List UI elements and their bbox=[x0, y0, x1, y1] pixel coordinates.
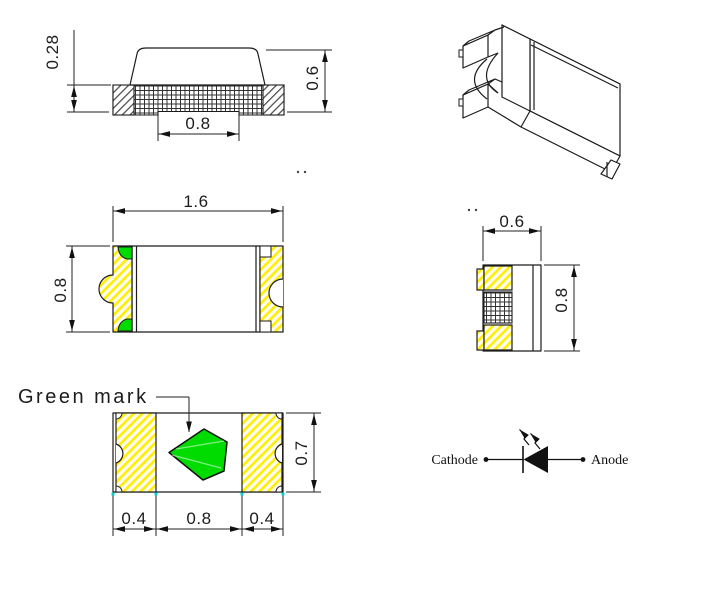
bottom-view: Green mark 0.4 0.8 0.4 bbox=[18, 386, 321, 536]
side-view-left-electrode bbox=[113, 85, 134, 115]
dim-text-08-top: 0.8 bbox=[51, 277, 70, 302]
led-package-drawing: 0.28 0.6 0.8 bbox=[0, 0, 707, 594]
side-view: 0.28 0.6 0.8 bbox=[43, 30, 332, 173]
side-view-base-plate bbox=[113, 85, 284, 115]
cathode-node bbox=[484, 457, 489, 462]
dim-text-07: 0.7 bbox=[292, 440, 311, 465]
dim-base-thickness: 0.28 bbox=[43, 30, 111, 112]
stray-dots-left bbox=[297, 171, 306, 173]
dim-text-16: 1.6 bbox=[183, 192, 208, 211]
dim-pads: 0.4 0.8 0.4 bbox=[112, 493, 285, 537]
end-view-electrode-top bbox=[484, 266, 512, 290]
side-view-resin-body bbox=[130, 48, 265, 85]
dim-text-028: 0.28 bbox=[43, 34, 62, 69]
end-view-wrap-bottom bbox=[477, 331, 484, 350]
iso-end-face bbox=[502, 25, 530, 111]
dim-bottom-notch: 0.8 bbox=[158, 114, 239, 141]
dim-text-08-bottom: 0.8 bbox=[186, 509, 211, 528]
dim-length: 1.6 bbox=[113, 192, 283, 242]
dim-text-04-right: 0.4 bbox=[249, 509, 274, 528]
end-view-wrap-top bbox=[477, 269, 484, 290]
top-view-right-corner-cut-bottom bbox=[260, 321, 271, 332]
drawing-canvas: 0.28 0.6 0.8 bbox=[0, 0, 707, 594]
dim-text-06-end: 0.6 bbox=[499, 212, 524, 231]
diode-triangle-icon bbox=[524, 446, 549, 473]
top-view: 1.6 0.8 bbox=[51, 192, 283, 332]
end-view-electrode-bottom bbox=[484, 325, 512, 350]
cathode-label: Cathode bbox=[431, 453, 478, 468]
defpoint-ticks bbox=[112, 493, 285, 496]
end-view: 0.6 0.8 bbox=[468, 209, 580, 351]
stray-dots-right bbox=[468, 209, 477, 211]
anode-node bbox=[581, 457, 586, 462]
dim-text-04-left: 0.4 bbox=[121, 509, 146, 528]
top-view-body bbox=[132, 246, 260, 332]
green-mark-label: Green mark bbox=[18, 386, 149, 408]
dim-end-height: 0.8 bbox=[544, 265, 580, 351]
dim-end-width: 0.6 bbox=[483, 212, 541, 261]
end-view-electrode-middle bbox=[484, 292, 512, 323]
anode-label: Anode bbox=[591, 453, 628, 468]
dim-text-08-end: 0.8 bbox=[552, 287, 571, 312]
side-view-right-electrode bbox=[263, 85, 284, 115]
polarity-symbol: Cathode Anode bbox=[431, 430, 628, 474]
top-view-right-corner-cut-top bbox=[260, 246, 271, 257]
dim-text-08-side: 0.8 bbox=[185, 114, 210, 133]
isometric-view bbox=[459, 25, 620, 179]
dim-text-06-side: 0.6 bbox=[303, 65, 322, 90]
dim-bottom-width: 0.7 bbox=[286, 413, 321, 492]
